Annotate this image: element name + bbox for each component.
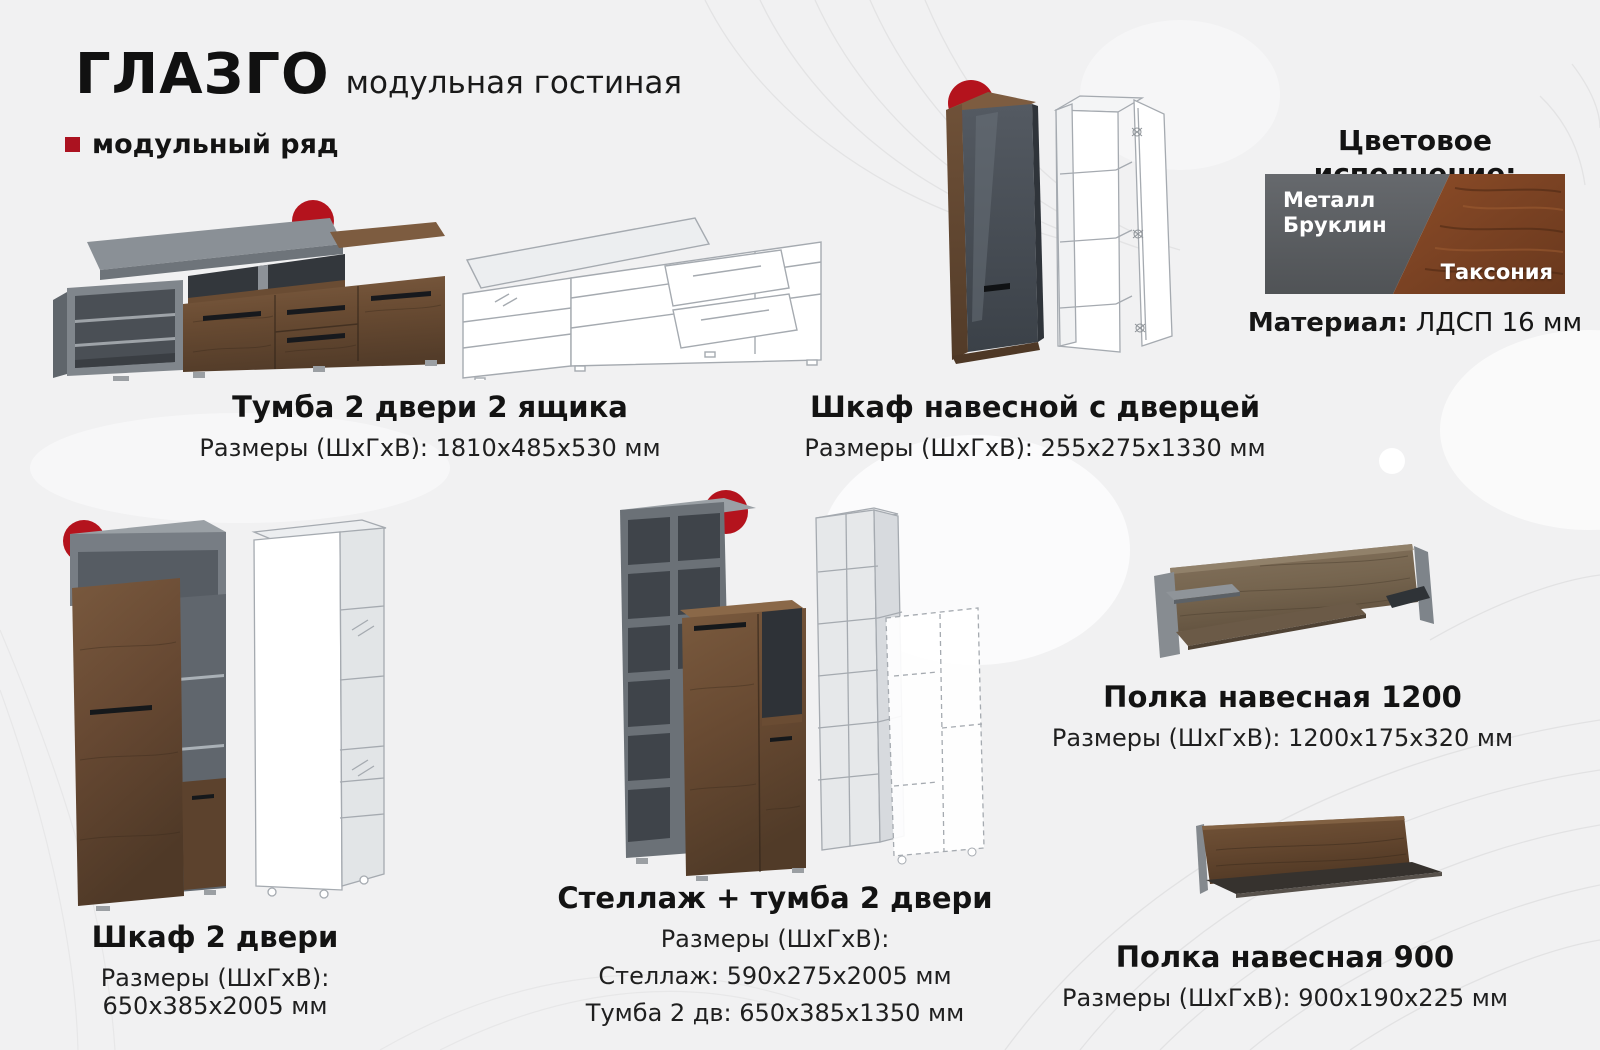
series-label: модульный ряд xyxy=(92,129,339,160)
material-label: Материал: xyxy=(1248,308,1408,338)
page-header: ГЛАЗГО модульная гостиная xyxy=(75,42,682,107)
product-6-photo xyxy=(1172,810,1444,914)
product-4-dims-line2: Тумба 2 дв: 650х385х1350 мм xyxy=(545,999,1005,1027)
product-6-name: Полка навесная 900 xyxy=(1050,940,1520,974)
product-4-dims-line1: Стеллаж: 590х275х2005 мм xyxy=(545,962,1005,990)
product-2-caption: Шкаф навесной с дверцей Размеры (ШхГхВ):… xyxy=(790,390,1280,462)
catalog-page: ГЛАЗГО модульная гостиная модульный ряд … xyxy=(0,0,1600,1050)
product-1-dims: Размеры (ШхГхВ): 1810х485х530 мм xyxy=(90,434,770,462)
product-2-photo xyxy=(936,80,1044,372)
product-5-dims: Размеры (ШхГхВ): 1200х175х320 мм xyxy=(1045,724,1520,752)
product-5-caption: Полка навесная 1200 Размеры (ШхГхВ): 120… xyxy=(1045,680,1520,752)
page-subtitle: модульная гостиная xyxy=(346,65,682,101)
product-6-caption: Полка навесная 900 Размеры (ШхГхВ): 900х… xyxy=(1050,940,1520,1012)
product-2-name: Шкаф навесной с дверцей xyxy=(790,390,1280,424)
product-4-name: Стеллаж + тумба 2 двери xyxy=(545,881,1005,915)
material-value: ЛДСП 16 мм xyxy=(1416,308,1582,338)
product-3-dims: Размеры (ШхГхВ): 650х385х2005 мм xyxy=(10,964,420,1020)
product-4-dims-label: Размеры (ШхГхВ): xyxy=(545,925,1005,953)
product-3-name: Шкаф 2 двери xyxy=(10,920,420,954)
product-6-dims: Размеры (ШхГхВ): 900х190х225 мм xyxy=(1050,984,1520,1012)
product-1-caption: Тумба 2 двери 2 ящика Размеры (ШхГхВ): 1… xyxy=(90,390,770,462)
product-5-name: Полка навесная 1200 xyxy=(1045,680,1520,714)
product-4-lineart xyxy=(802,496,992,874)
swatch-left-label: Металл Бруклин xyxy=(1283,188,1413,238)
material-line: Материал:ЛДСП 16 мм xyxy=(1240,308,1590,338)
product-1-name: Тумба 2 двери 2 ящика xyxy=(90,390,770,424)
product-2-lineart xyxy=(1042,84,1192,376)
product-3-caption: Шкаф 2 двери Размеры (ШхГхВ): 650х385х20… xyxy=(10,920,420,1020)
product-4-photo xyxy=(606,490,811,886)
red-square-bullet-icon xyxy=(65,137,80,152)
series-row: модульный ряд xyxy=(65,129,339,160)
product-5-photo xyxy=(1140,536,1438,668)
finish-swatch: Металл Бруклин Таксония xyxy=(1265,174,1565,294)
swatch-right-label: Таксония xyxy=(1441,260,1553,284)
product-3-lineart xyxy=(242,510,394,914)
product-4-caption: Стеллаж + тумба 2 двери Размеры (ШхГхВ):… xyxy=(545,881,1005,1027)
product-2-dims: Размеры (ШхГхВ): 255х275х1330 мм xyxy=(790,434,1280,462)
product-1-lineart xyxy=(455,202,835,380)
product-3-photo xyxy=(56,510,234,914)
page-title: ГЛАЗГО xyxy=(75,42,330,107)
product-1-photo xyxy=(53,192,451,388)
